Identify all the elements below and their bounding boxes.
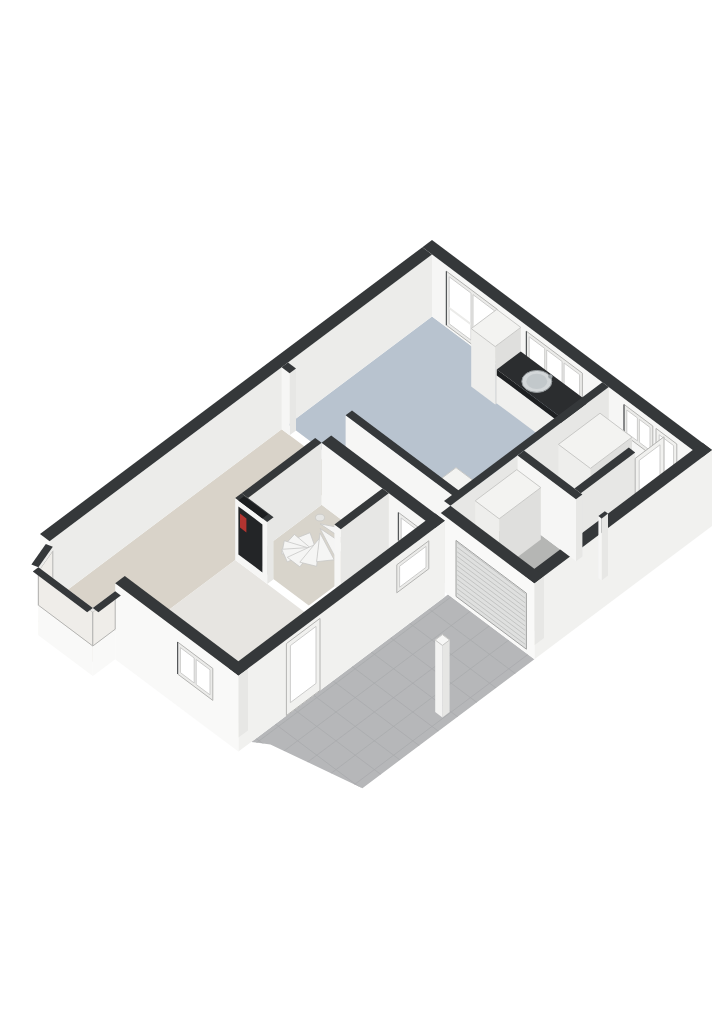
driveway-post (435, 635, 449, 718)
floorplan-svg (0, 0, 724, 1024)
floorplan-page (0, 0, 724, 1024)
kitchen-sink (522, 370, 553, 392)
floorplan-3d-canvas (0, 0, 724, 1024)
wall-divider-left (282, 362, 296, 435)
wall-garage-hall-right (598, 511, 608, 580)
